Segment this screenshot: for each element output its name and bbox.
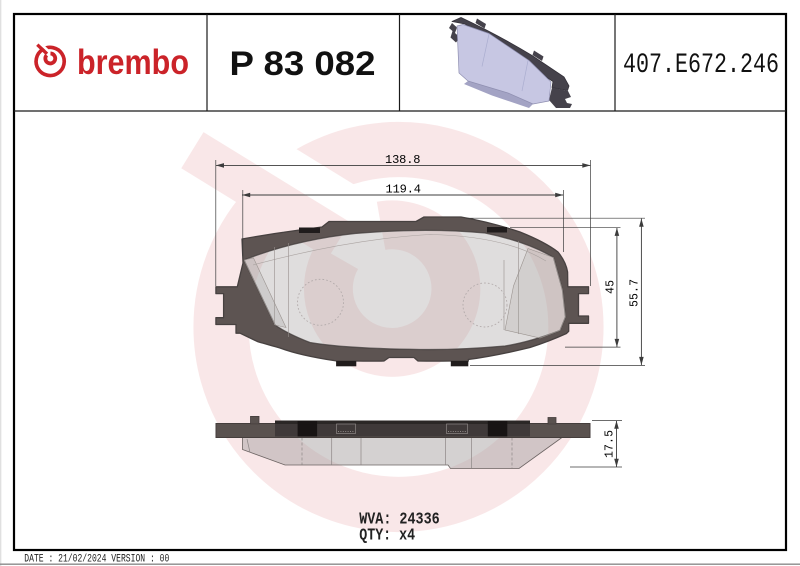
svg-text:55.7: 55.7 [629, 279, 642, 307]
svg-text:brembo: brembo [77, 43, 189, 82]
svg-text:QTY: x4: QTY: x4 [359, 527, 415, 546]
svg-text:119.4: 119.4 [386, 182, 422, 196]
svg-text:138.8: 138.8 [385, 153, 421, 167]
svg-text:17.5: 17.5 [604, 430, 617, 458]
svg-text:45: 45 [605, 280, 618, 294]
svg-text:P 83 082: P 83 082 [230, 45, 376, 83]
svg-text:407.E672.246: 407.E672.246 [623, 50, 779, 81]
